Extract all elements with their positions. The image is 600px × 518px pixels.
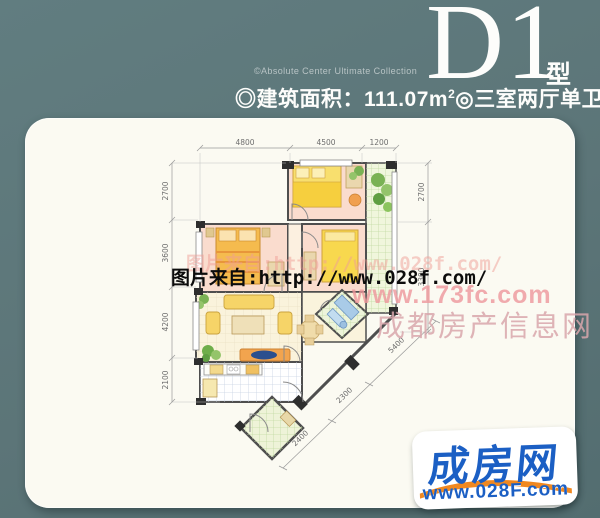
fridge [203, 379, 217, 397]
tv [251, 351, 277, 360]
dim-left-1: 2700 [161, 181, 170, 200]
stove [246, 365, 259, 374]
dim-top-2: 4500 [316, 138, 335, 147]
sofa [224, 295, 274, 309]
dim-top-1: 4800 [235, 138, 254, 147]
dim-top-3: 1200 [369, 138, 388, 147]
dim-left-3: 4200 [161, 312, 170, 331]
watermark-site-name: 成都房产信息网 [376, 303, 593, 345]
chengfang-logo: 成房网 www.028F.com [412, 426, 579, 510]
dim-left-4: 2100 [161, 370, 170, 389]
armchair [206, 312, 220, 334]
armchair [278, 312, 292, 334]
dim-left-2: 3600 [161, 243, 170, 262]
dim-right-1: 2700 [417, 182, 426, 201]
armchair [349, 194, 361, 206]
coffee-table [232, 316, 264, 334]
